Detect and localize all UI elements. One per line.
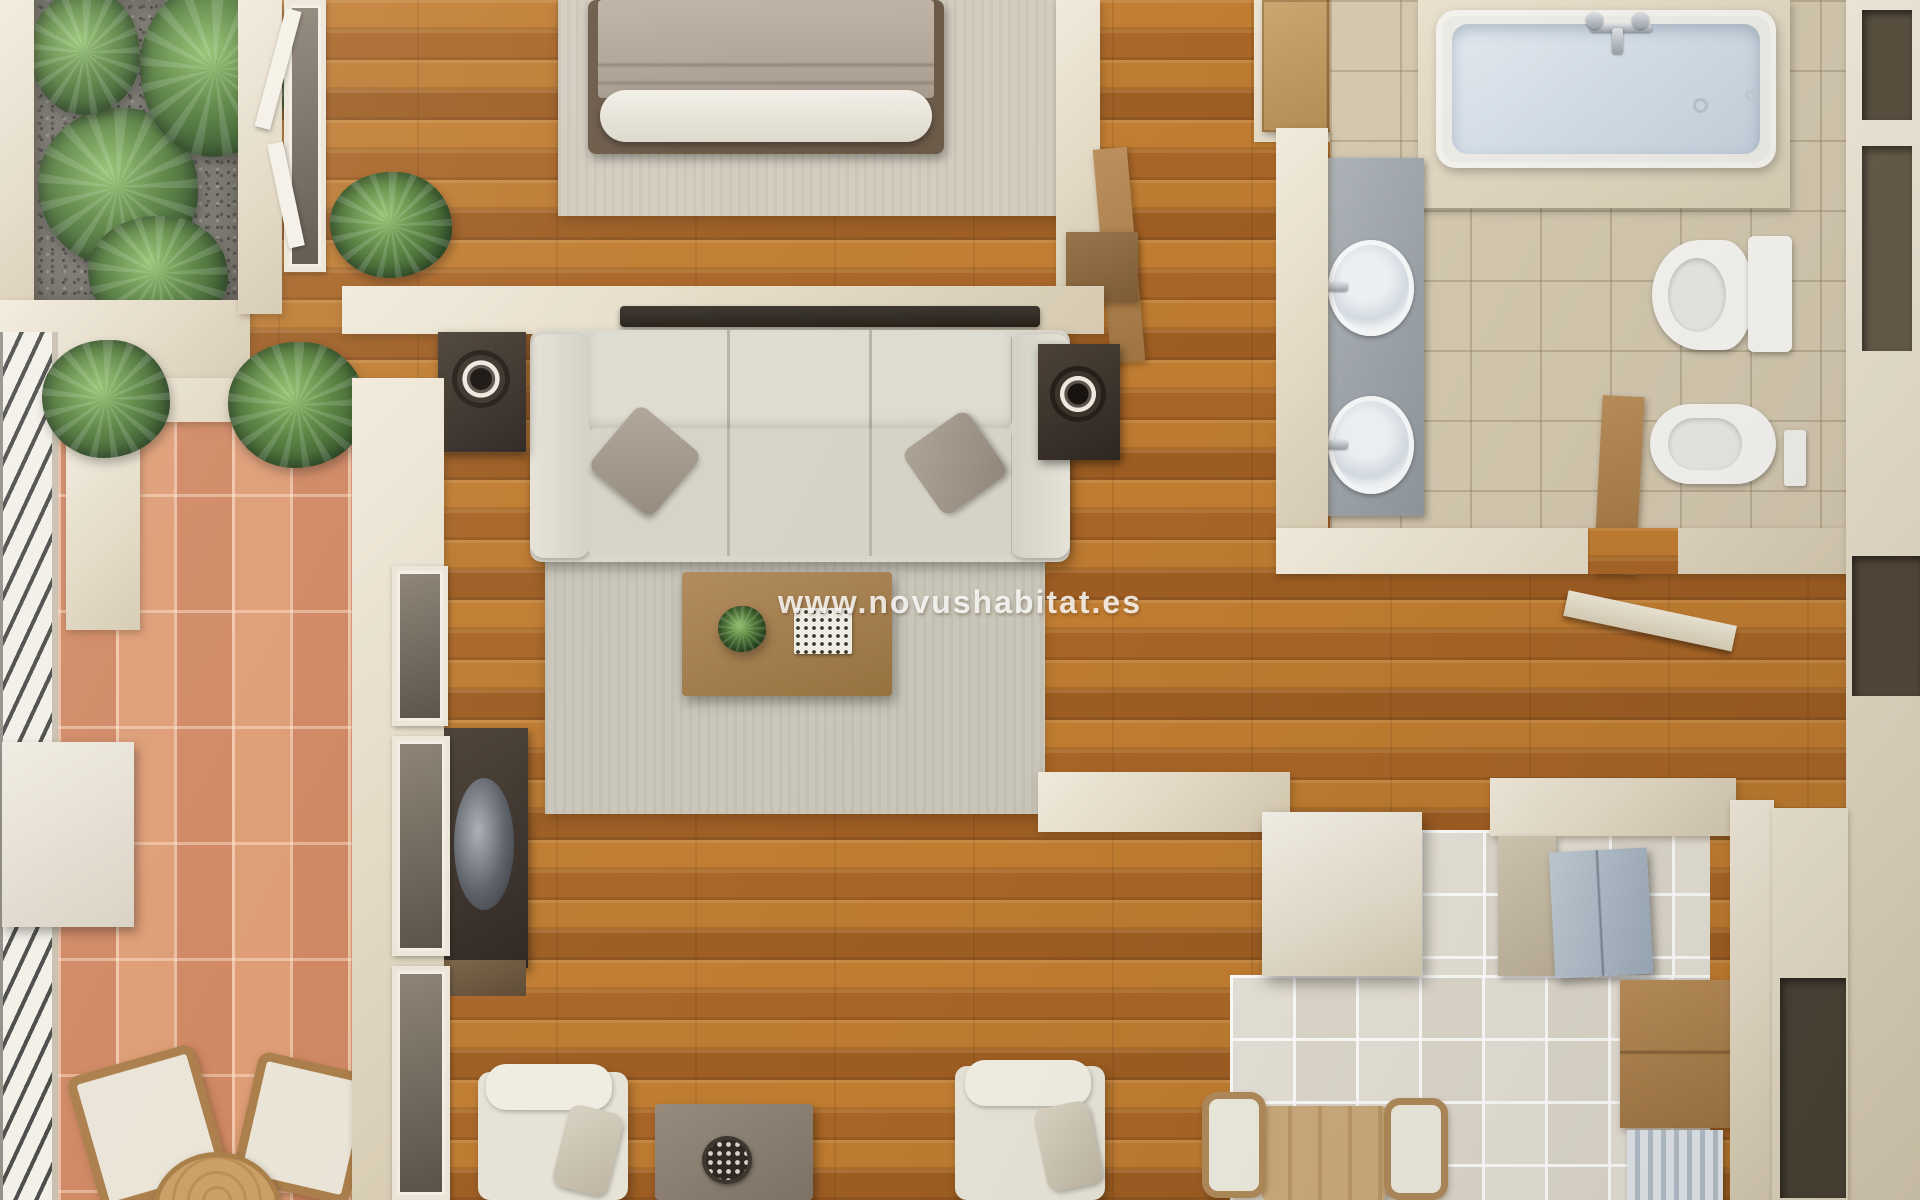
towel-rail — [1784, 430, 1806, 486]
bed-blanket-roll — [600, 90, 932, 142]
dining-chair — [1384, 1098, 1448, 1200]
garden-plant — [30, 0, 140, 115]
tv-screen — [454, 778, 514, 910]
garden-wall-left — [0, 0, 34, 342]
bed-duvet — [598, 0, 934, 98]
kitchen-wall-top — [1490, 778, 1736, 836]
kitchen-wall-right — [1730, 800, 1774, 1200]
bathtub-basin — [1452, 24, 1760, 154]
tv-cabinet-shelf — [444, 960, 526, 996]
speaker-cone — [452, 350, 510, 408]
bathroom-wall-bottom — [1276, 528, 1854, 574]
terrace-plant — [42, 340, 170, 458]
floor-plan-scene: www.novushabitat.es — [0, 0, 1920, 1200]
kitchen-cabinet — [1498, 836, 1556, 976]
storage-niche — [1780, 978, 1846, 1198]
armchair-back — [965, 1060, 1091, 1106]
terrace-glass-door — [392, 966, 450, 1200]
bedroom-plant — [330, 172, 452, 278]
dish-rack — [1627, 1130, 1723, 1200]
bathroom-wall-left — [1276, 128, 1328, 572]
kitchen-tall-cabinet — [1620, 980, 1732, 1128]
armchair-back — [486, 1064, 612, 1110]
fridge — [1549, 848, 1653, 979]
dining-table — [1262, 1106, 1386, 1200]
wall-niche — [1862, 10, 1912, 120]
toilet-cistern — [1748, 236, 1792, 352]
terrace-plant — [228, 342, 366, 468]
toilet-seat — [1668, 258, 1726, 332]
ac-unit — [2, 742, 134, 927]
bathtub-faucet-knob — [1586, 12, 1603, 29]
terrace-glass-door — [392, 736, 450, 956]
sofa-armrest — [530, 334, 590, 558]
bathtub-drain — [1693, 98, 1708, 113]
bathtub-overflow — [1745, 90, 1756, 101]
wall-niche — [1862, 146, 1912, 351]
dining-chair — [1202, 1092, 1266, 1198]
speaker-cone — [1050, 366, 1106, 422]
bathtub-spout — [1612, 28, 1623, 54]
soundbar — [620, 306, 1040, 327]
bathroom-doorway — [1588, 528, 1678, 574]
kitchen-island — [1262, 812, 1422, 976]
kitchen-wall-left — [1038, 772, 1290, 832]
decor-bowl — [702, 1136, 752, 1184]
bidet-basin — [1668, 418, 1742, 470]
watermark: www.novushabitat.es — [0, 584, 1920, 621]
entry-doorway — [1852, 556, 1920, 696]
bathtub-faucet-knob — [1632, 12, 1649, 29]
